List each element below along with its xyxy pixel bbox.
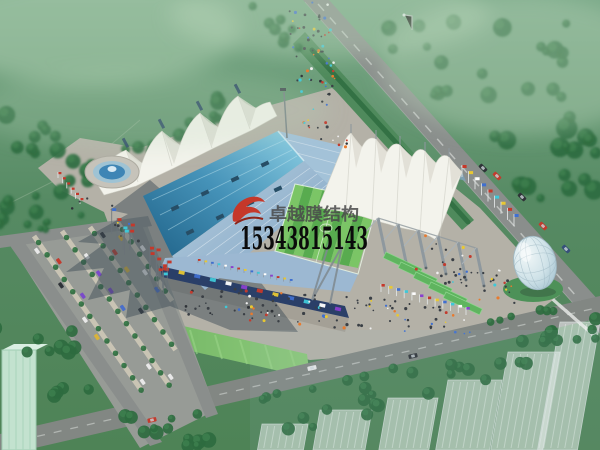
stadium-aerial-rendering: 卓越膜结构 15343815143	[0, 0, 600, 450]
watermark-phone-number: 15343815143	[240, 221, 368, 257]
city-tint-overlay	[250, 330, 600, 450]
rendering-canvas: 卓越膜结构 15343815143	[0, 0, 600, 450]
fountain	[85, 156, 139, 188]
fountain-jets	[108, 166, 117, 172]
